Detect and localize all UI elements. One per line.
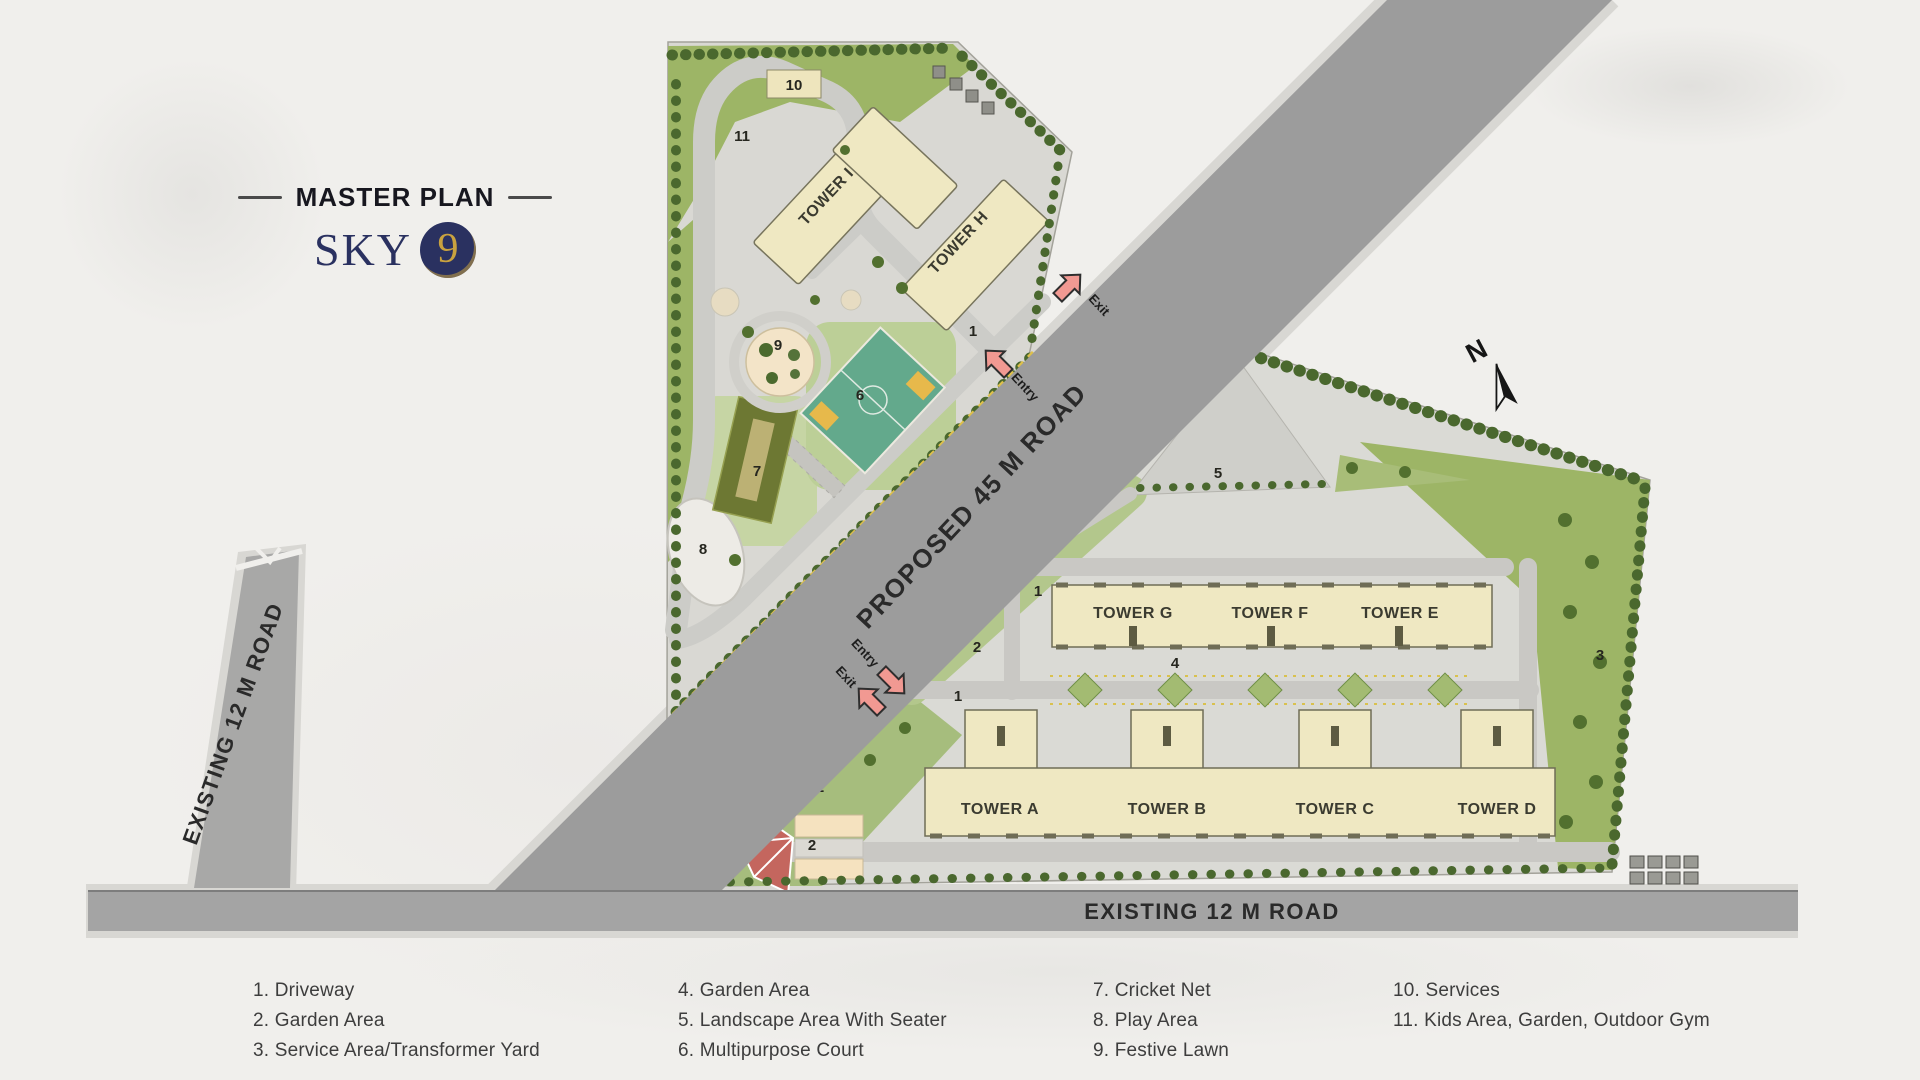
legend-item-services: 10. Services: [1393, 976, 1710, 1006]
master-plan-page: MASTER PLAN SKY 9: [0, 0, 1920, 1080]
plan-number-10: 10: [786, 77, 803, 94]
plan-number-4: 4: [1171, 655, 1180, 672]
plan-number-6: 6: [856, 387, 864, 404]
compass-needle-icon: [1486, 361, 1518, 409]
legend-item-landscape-area: 5. Landscape Area With Seater: [678, 1006, 947, 1036]
legend-item-festive-lawn: 9. Festive Lawn: [1093, 1036, 1229, 1066]
legend-column-2: 4. Garden Area 5. Landscape Area With Se…: [678, 976, 947, 1066]
seater-strips: [795, 815, 863, 879]
tower-g-label: TOWER G: [1093, 605, 1173, 622]
legend-item-driveway: 1. Driveway: [253, 976, 540, 1006]
logo-wordmark: SKY: [314, 227, 412, 273]
legend-item-service-area: 3. Service Area/Transformer Yard: [253, 1036, 540, 1066]
tower-b-label: TOWER B: [1128, 801, 1207, 818]
logo-disc-icon: 9: [420, 222, 476, 278]
plan-number-2-seater: 2: [808, 837, 816, 854]
north-arrow: N: [1461, 333, 1518, 409]
plan-number-2-strip: 2: [973, 639, 981, 656]
plan-number-1-loop: 1: [1034, 583, 1042, 600]
north-label: N: [1461, 333, 1492, 369]
legend-item-garden-area-2: 2. Garden Area: [253, 1006, 540, 1036]
plan-number-3: 3: [1596, 647, 1604, 664]
legend: 1. Driveway 2. Garden Area 3. Service Ar…: [0, 976, 1920, 1076]
plan-number-1-upper: 1: [969, 323, 977, 340]
tower-d-label: TOWER D: [1458, 801, 1537, 818]
legend-column-1: 1. Driveway 2. Garden Area 3. Service Ar…: [253, 976, 540, 1066]
plan-number-8: 8: [699, 541, 707, 558]
page-title: MASTER PLAN: [215, 182, 575, 213]
plan-number-11: 11: [734, 128, 750, 145]
existing-12m-road-left: EXISTING 12 M ROAD: [177, 546, 302, 888]
legend-item-multipurpose-court: 6. Multipurpose Court: [678, 1036, 947, 1066]
plan-number-7: 7: [753, 463, 761, 480]
title-dash-right: [508, 196, 552, 199]
legend-item-play-area: 8. Play Area: [1093, 1006, 1229, 1036]
tower-a-label: TOWER A: [961, 801, 1039, 818]
transformer-yard-grid: [1630, 856, 1698, 884]
plan-number-9: 9: [774, 337, 782, 354]
legend-item-cricket-net: 7. Cricket Net: [1093, 976, 1229, 1006]
bottom-road-label: EXISTING 12 M ROAD: [1084, 899, 1340, 924]
tower-c-label: TOWER C: [1296, 801, 1375, 818]
legend-column-4: 10. Services 11. Kids Area, Garden, Outd…: [1393, 976, 1710, 1036]
page-title-text: MASTER PLAN: [296, 182, 495, 213]
plan-number-5: 5: [1214, 465, 1222, 482]
legend-column-3: 7. Cricket Net 8. Play Area 9. Festive L…: [1093, 976, 1229, 1066]
plan-number-1-entry: 1: [954, 688, 962, 705]
existing-12m-road-bottom: EXISTING 12 M ROAD: [88, 891, 1798, 931]
legend-item-kids-area: 11. Kids Area, Garden, Outdoor Gym: [1393, 1006, 1710, 1036]
brand-logo: SKY 9: [215, 222, 575, 278]
tower-e-label: TOWER E: [1361, 605, 1439, 622]
legend-item-garden-area-4: 4. Garden Area: [678, 976, 947, 1006]
site-plan-canvas: 11 10 9 6 7 8 1 TOWER I TOWER H: [0, 0, 1920, 1080]
logo-number: 9: [438, 228, 459, 270]
title-dash-left: [238, 196, 282, 199]
tower-f-label: TOWER F: [1232, 605, 1309, 622]
